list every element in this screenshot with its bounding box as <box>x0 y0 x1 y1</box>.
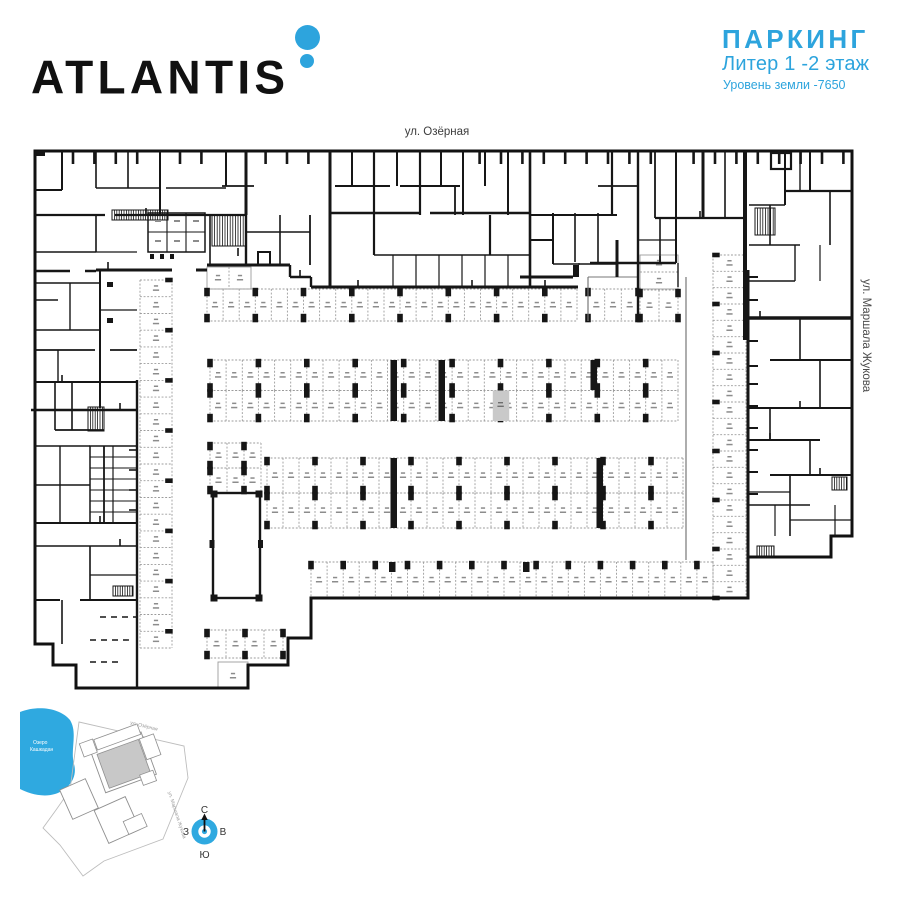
svg-text:Озеро: Озеро <box>33 740 48 746</box>
svg-text:Кашкадан: Кашкадан <box>30 747 53 753</box>
svg-text:С: С <box>201 805 208 816</box>
svg-text:ул. Озёрная: ул. Озёрная <box>405 126 470 138</box>
svg-text:З: З <box>183 827 189 838</box>
svg-text:ул. Маршала Жукова: ул. Маршала Жукова <box>860 279 872 393</box>
svg-text:В: В <box>220 827 227 838</box>
svg-text:Ю: Ю <box>199 850 209 861</box>
